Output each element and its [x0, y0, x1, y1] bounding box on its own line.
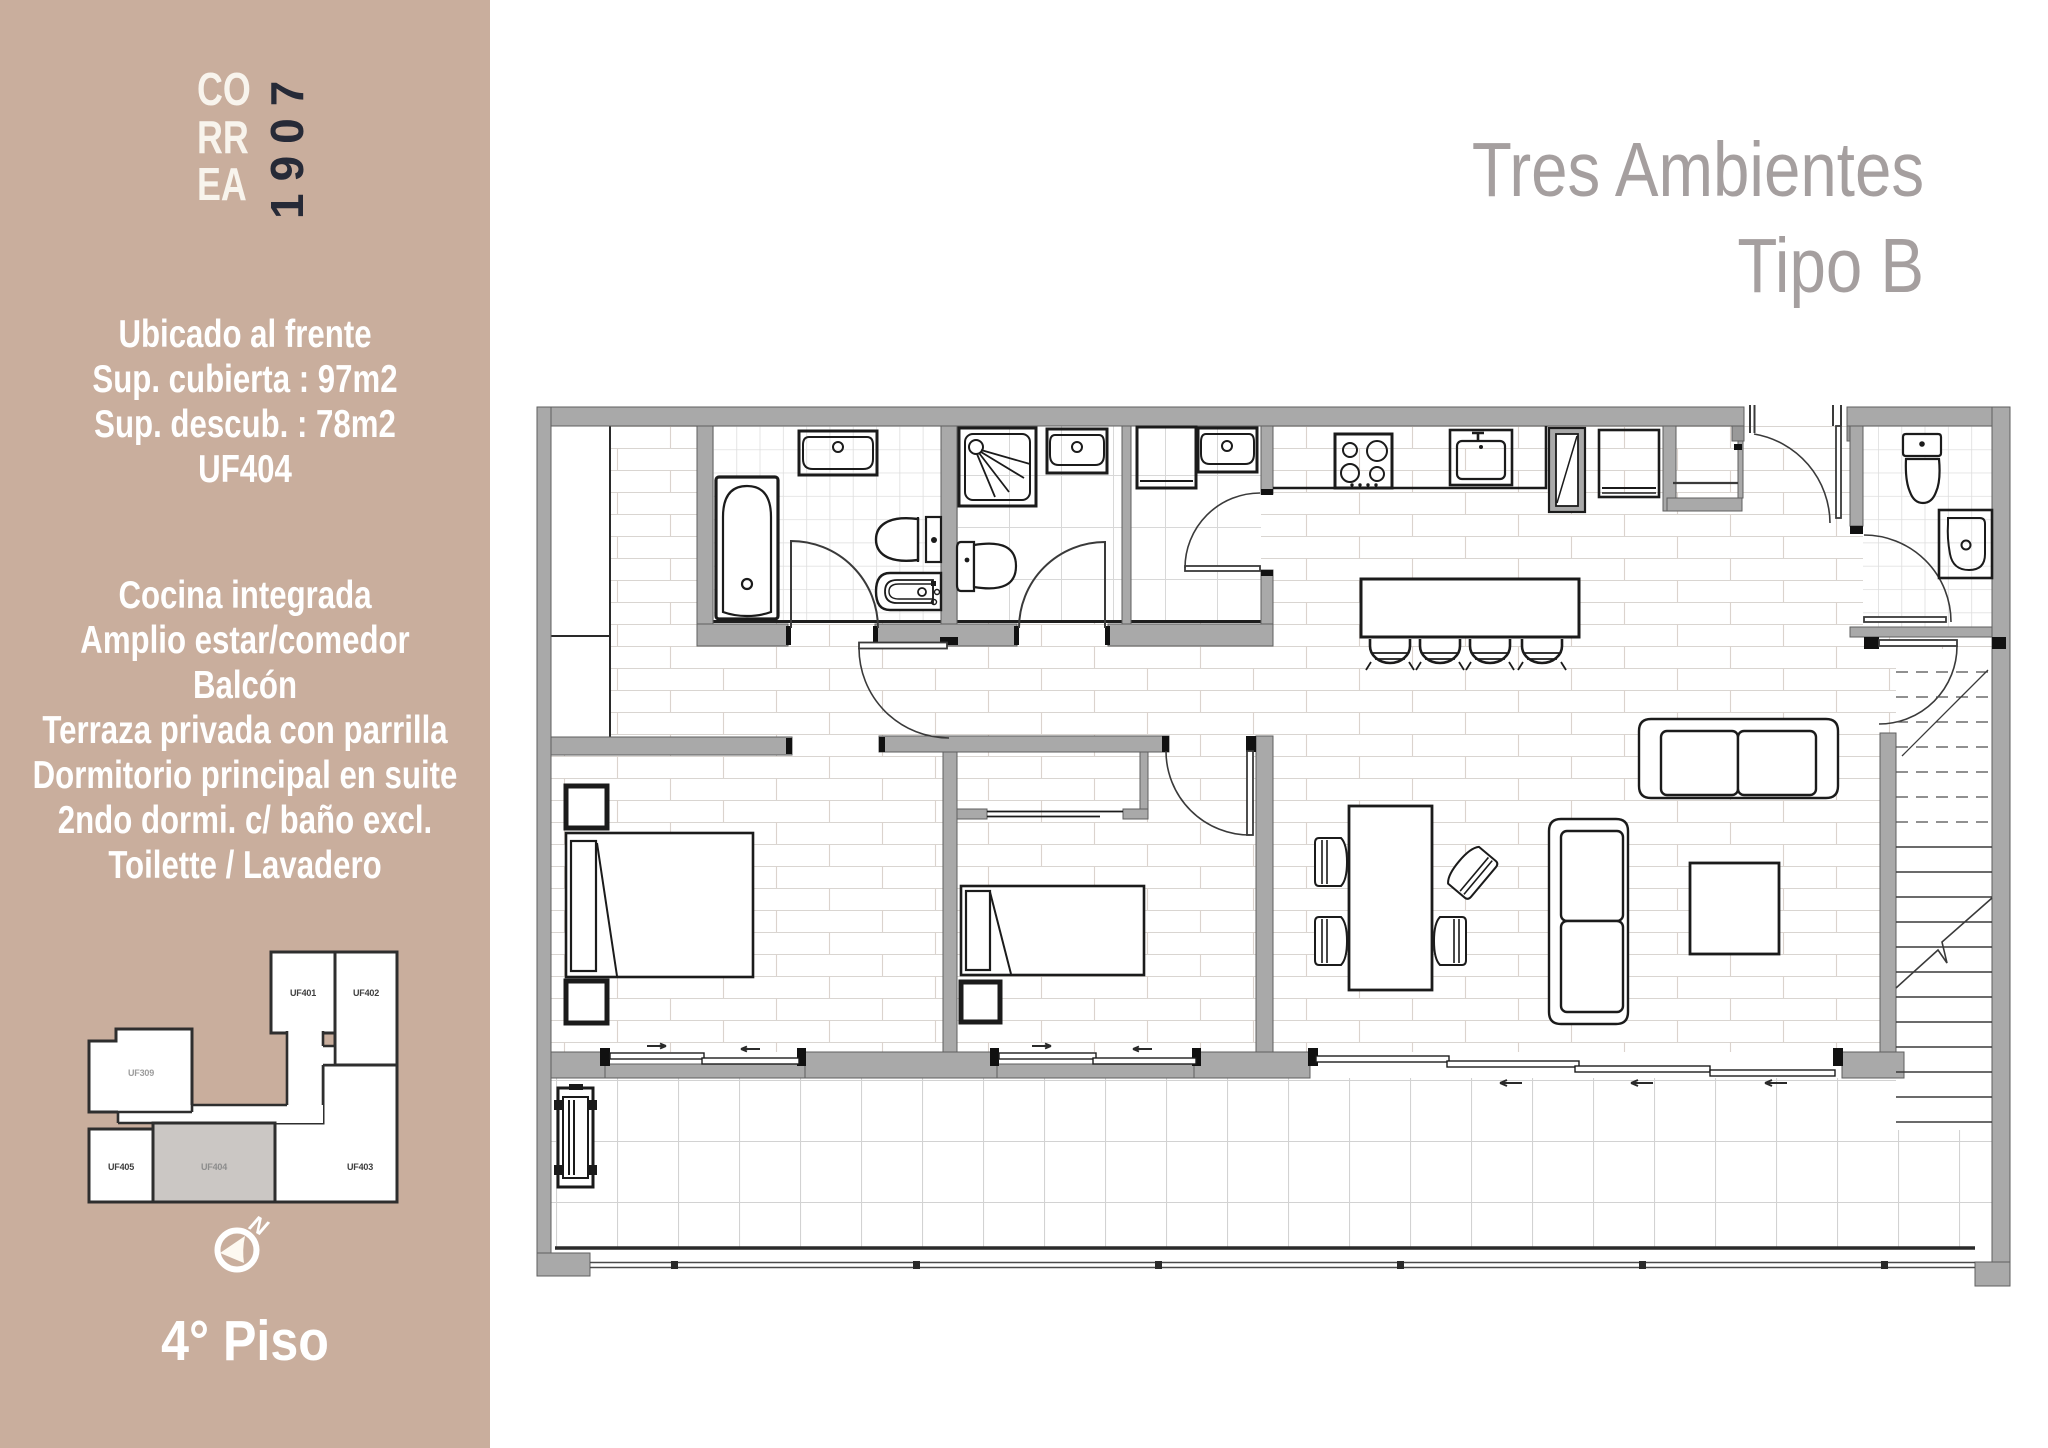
- svg-text:UF403: UF403: [347, 1162, 373, 1172]
- svg-text:UF309: UF309: [128, 1068, 154, 1078]
- svg-text:UF404: UF404: [201, 1162, 227, 1172]
- svg-text:UF401: UF401: [290, 988, 316, 998]
- svg-text:UF402: UF402: [353, 988, 379, 998]
- svg-text:UF405: UF405: [108, 1162, 134, 1172]
